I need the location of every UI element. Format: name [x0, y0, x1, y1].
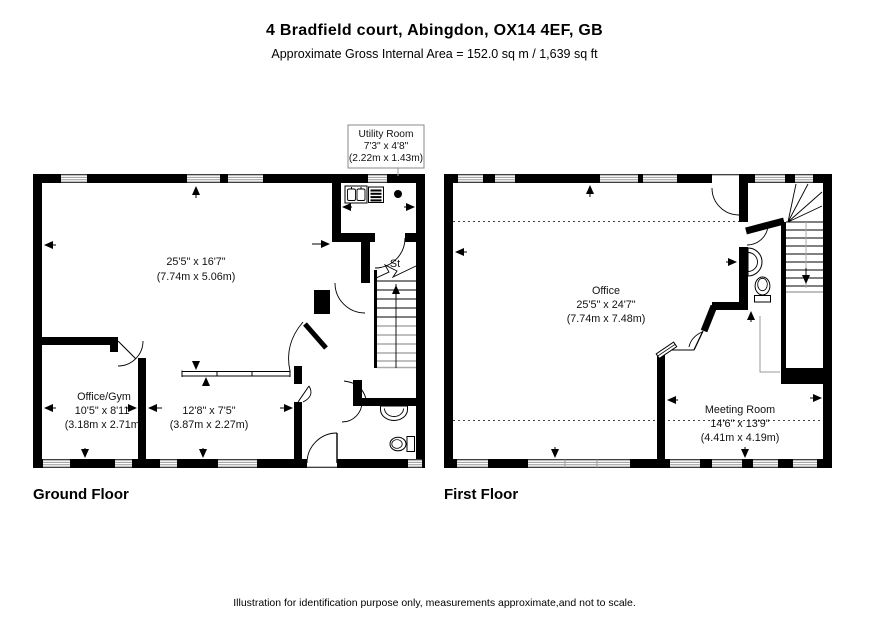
glass-partition: [182, 371, 290, 378]
window: [61, 174, 87, 183]
meeting-room-size-imperial: 14'6" x 13'9": [710, 418, 769, 430]
floor-plan-canvas: Utility Room 7'3" x 4'8" (2.22m x 1.43m)…: [0, 0, 869, 628]
main-area-size-metric: (7.74m x 5.06m): [157, 271, 236, 283]
window: [457, 459, 488, 468]
floorplan-page: 4 Bradfield court, Abingdon, OX14 4EF, G…: [0, 0, 869, 628]
window: [368, 174, 387, 183]
first-bathroom-fixtures: [748, 248, 771, 302]
window: [43, 459, 70, 468]
utility-room-size-imperial: 7'3" x 4'8": [364, 141, 409, 152]
window: [600, 174, 638, 183]
landing-door: [712, 174, 739, 215]
ff-office-size-imperial: 25'5" x 24'7": [576, 299, 635, 311]
window: [218, 459, 257, 468]
first-floor-plan: Office 25'5" x 24'7" (7.74m x 7.48m) Mee…: [444, 174, 832, 468]
window: [793, 459, 817, 468]
window: [643, 174, 677, 183]
window: [712, 459, 742, 468]
rear-room-size-metric: (3.87m x 2.27m): [170, 419, 249, 431]
basin-icon: [748, 248, 762, 276]
door-leaves: [118, 324, 326, 402]
window: [408, 459, 422, 468]
office-gym-size-imperial: 10'5" x 8'11": [75, 405, 134, 417]
utility-room-size-metric: (2.22m x 1.43m): [349, 153, 423, 164]
meeting-room-name: Meeting Room: [705, 404, 775, 416]
window: [528, 459, 630, 468]
disclaimer: Illustration for identification purpose …: [0, 597, 869, 609]
storage-label: St: [390, 258, 400, 270]
staircase: [374, 265, 416, 368]
window: [458, 174, 483, 183]
ground-floor-label: Ground Floor: [33, 486, 129, 503]
window: [187, 174, 220, 183]
window: [115, 459, 132, 468]
office-gym-name: Office/Gym: [77, 391, 131, 403]
window: [160, 459, 177, 468]
boiler-icon: [394, 190, 402, 198]
washing-machine-icon: [369, 187, 384, 203]
ground-bathroom-fixtures: [381, 406, 415, 452]
toilet-icon: [390, 437, 415, 452]
window: [670, 459, 700, 468]
entrance-door: [307, 433, 337, 468]
utility-fixtures: [345, 186, 402, 203]
window: [228, 174, 263, 183]
office-gym-size-metric: (3.18m x 2.71m): [65, 419, 144, 431]
meeting-room-size-metric: (4.41m x 4.19m): [701, 432, 780, 444]
rear-room-size-imperial: 12'8" x 7'5": [182, 405, 235, 417]
main-area-size-imperial: 25'5" x 16'7": [166, 256, 225, 268]
window: [753, 459, 778, 468]
staircase-down: [760, 184, 823, 372]
first-floor-label: First Floor: [444, 486, 518, 503]
sink-icon: [345, 186, 367, 203]
toilet-icon: [755, 277, 771, 302]
ground-floor-plan: Utility Room 7'3" x 4'8" (2.22m x 1.43m)…: [33, 125, 425, 468]
window: [795, 174, 813, 183]
window: [755, 174, 785, 183]
ff-office-name: Office: [592, 285, 620, 297]
utility-room-callout: Utility Room 7'3" x 4'8" (2.22m x 1.43m): [348, 125, 424, 176]
first-floor-windows-top: [458, 174, 813, 183]
utility-room-name: Utility Room: [359, 129, 414, 140]
window: [495, 174, 515, 183]
ff-office-size-metric: (7.74m x 7.48m): [567, 313, 646, 325]
basin-icon: [381, 406, 408, 421]
